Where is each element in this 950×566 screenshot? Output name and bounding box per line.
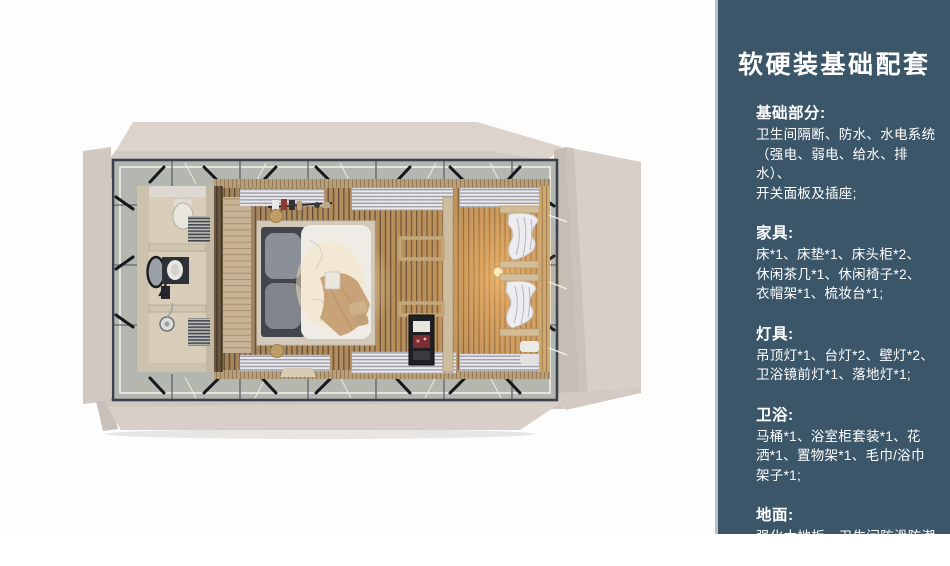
towel-rack [188, 318, 210, 346]
vanity-mirror [148, 257, 165, 287]
towel [520, 341, 539, 352]
shelf-divider [149, 305, 206, 312]
bench-board [500, 329, 539, 336]
pillow [265, 283, 301, 329]
bench-board [500, 206, 539, 213]
render-stage [0, 0, 715, 534]
bedside-stool [271, 345, 284, 358]
pillow [265, 233, 301, 279]
bench-board [500, 274, 539, 281]
section-flooring: 地面: 强化木地板、卫生间防滑防潮 石塑板; [738, 503, 940, 566]
section-body: 卫生间隔断、防水、水电系统 （强电、弱电、给水、排水）、 开关面板及插座; [756, 125, 940, 203]
section-heading: 基础部分: [756, 101, 940, 123]
section-heading: 卫浴: [756, 403, 940, 425]
section-heading: 家具: [756, 221, 940, 243]
section-heading: 灯具: [756, 322, 940, 344]
room-render-top-view [0, 0, 715, 534]
towel [520, 354, 539, 364]
section-body: 马桶*1、浴室柜套装*1、花 洒*1、置物架*1、毛巾/浴巾 架子*1; [756, 427, 940, 486]
left-awning-panel [83, 147, 111, 404]
info-panel: 软硬装基础配套 基础部分: 卫生间隔断、防水、水电系统 （强电、弱电、给水、排水… [715, 0, 950, 534]
bed [257, 210, 375, 358]
bathroom [137, 186, 214, 372]
dark-plank-strip [214, 186, 223, 372]
section-lighting: 灯具: 吊顶灯*1、台灯*2、壁灯*2、 卫浴镜前灯*1、落地灯*1; [738, 322, 940, 385]
section-bathroom: 卫浴: 马桶*1、浴室柜套装*1、花 洒*1、置物架*1、毛巾/浴巾 架子*1; [738, 403, 940, 486]
section-heading: 地面: [756, 503, 940, 525]
partition-wall [443, 197, 453, 372]
door-mat [280, 368, 316, 377]
towel-rack [188, 216, 210, 242]
bench-board [500, 261, 539, 268]
section-body: 床*1、床垫*1、床头柜*2、 休闲茶几*1、休闲椅子*2、 衣帽架*1、梳妆台… [756, 245, 940, 304]
bedside-stool [270, 210, 283, 223]
section-furniture: 家具: 床*1、床垫*1、床头柜*2、 休闲茶几*1、休闲椅子*2、 衣帽架*1… [738, 221, 940, 304]
section-basics: 基础部分: 卫生间隔断、防水、水电系统 （强电、弱电、给水、排水）、 开关面板及… [738, 101, 940, 203]
section-body: 吊顶灯*1、台灯*2、壁灯*2、 卫浴镜前灯*1、落地灯*1; [756, 346, 940, 385]
panel-title: 软硬装基础配套 [738, 45, 940, 81]
shelf-divider [149, 244, 206, 251]
end-wall-paneling [539, 186, 550, 372]
headboard-wall [223, 197, 254, 353]
bed-tray [325, 272, 340, 289]
section-body: 强化木地板、卫生间防滑防潮 石塑板; [756, 527, 940, 566]
slide: 软硬装基础配套 基础部分: 卫生间隔断、防水、水电系统 （强电、弱电、给水、排水… [0, 0, 950, 534]
